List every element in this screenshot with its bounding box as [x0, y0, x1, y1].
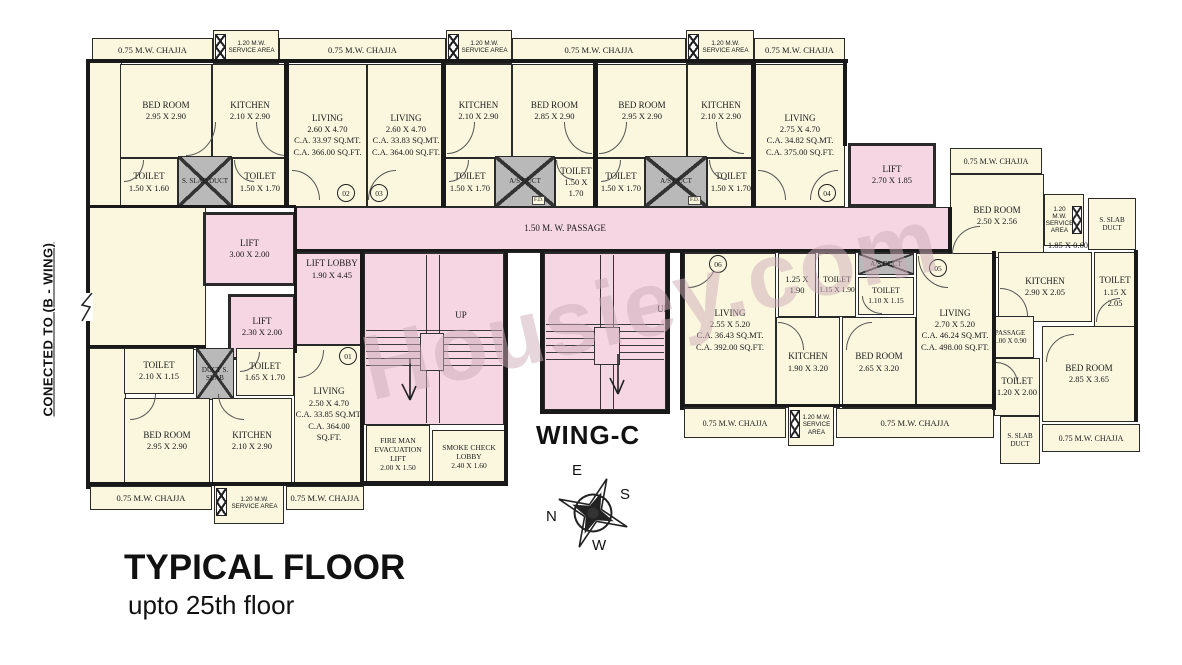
wall	[86, 59, 90, 489]
lift-lobby-label: LIFT LOBBY1.90 X 4.45	[296, 258, 368, 281]
unit-number-06: 06	[709, 255, 727, 273]
stair-direction-arrow	[604, 352, 630, 402]
chajja-strip: 0.75 M.W. CHAJJA	[1042, 424, 1140, 452]
wall	[441, 62, 446, 207]
wall	[362, 481, 508, 486]
room-smoke-check-lobby: SMOKE CHECK LOBBY 2.40 X 1.60	[432, 430, 506, 482]
window-x-icon	[1072, 206, 1082, 234]
wall	[992, 251, 996, 410]
unit-number-01: 01	[339, 347, 357, 365]
room-kitchen: KITCHEN2.10 X 2.90	[687, 64, 755, 158]
compass-east-label: E	[572, 462, 582, 479]
stair-gap-2	[670, 253, 680, 410]
duct-s-slab: DUCT S. SLAB	[196, 348, 234, 400]
window-x-icon	[688, 34, 699, 60]
room-lift: LIFT2.70 X 1.85	[848, 143, 936, 207]
duct-as: A/S DUCT	[495, 156, 555, 207]
wall	[86, 59, 848, 63]
stair-landing	[420, 333, 444, 371]
window-x-icon	[216, 488, 227, 516]
wall	[296, 249, 952, 252]
unit-number-02: 02	[337, 184, 355, 202]
unit-number-04: 04	[818, 184, 836, 202]
wall	[666, 251, 670, 414]
wall	[88, 345, 206, 348]
wall	[1134, 250, 1138, 422]
room-toilet: TOILET2.10 X 1.15	[124, 348, 194, 394]
left-strip-top	[88, 62, 122, 208]
wall	[948, 207, 952, 253]
chajja-strip: 0.75 M.W. CHAJJA	[950, 148, 1042, 174]
window-x-icon	[790, 410, 800, 438]
wall	[680, 404, 996, 407]
room-lift: LIFT3.00 X 2.00	[203, 212, 296, 286]
chajja-strip: 0.75 M.W. CHAJJA	[90, 486, 212, 510]
duct-as: A/S DUCT	[858, 253, 914, 275]
stair-direction-arrow	[396, 356, 422, 408]
wall	[540, 410, 670, 414]
wall-break-icon	[78, 293, 98, 323]
room-bath: 1.25 X 1.90	[778, 253, 816, 317]
wall	[751, 62, 756, 207]
passage-label: 1.50 M. W. PASSAGE	[480, 223, 650, 233]
page-title: TYPICAL FLOOR	[124, 548, 405, 588]
room-toilet: TOILET1.15 X 1.90	[818, 253, 856, 317]
chajja-strip: 0.75 M.W. CHAJJA	[836, 408, 994, 438]
wall	[593, 62, 598, 207]
fd-tag: F.D.	[688, 196, 701, 205]
room-fireman-lift: FIRE MAN EVACUATION LIFT 2.00 X 1.50	[366, 425, 430, 483]
chajja-strip: 0.75 M.W. CHAJJA	[684, 408, 786, 438]
window-x-icon	[215, 34, 226, 60]
stair-up-label: UP	[446, 310, 476, 320]
wing-label: WING-C	[536, 420, 640, 451]
chajja-strip: 0.75 M.W. CHAJJA	[286, 486, 364, 510]
wall	[540, 251, 544, 414]
compass-north-label: N	[546, 508, 557, 525]
page-subtitle: upto 25th floor	[128, 590, 294, 621]
wall	[843, 62, 847, 146]
window-x-icon	[448, 34, 459, 60]
wall	[88, 205, 296, 208]
wall	[284, 62, 289, 207]
floor-plan: 0.75 M.W. CHAJJA 1.20 M.W. SERVICE AREA …	[0, 0, 1182, 665]
unit-number-03: 03	[370, 184, 388, 202]
wall	[360, 251, 364, 485]
wall	[86, 482, 366, 486]
compass-west-label: W	[592, 537, 606, 554]
fd-tag: F.D.	[532, 196, 545, 205]
stair-up-label: UP	[648, 304, 678, 314]
left-open-area	[88, 205, 206, 350]
wall	[504, 251, 508, 485]
duct-s-slab: S. SLAB DUCT	[1000, 416, 1040, 464]
connected-wing-label: CONECTED TO (B - WING)	[41, 220, 56, 440]
duct-s-slab: S. SLAB DUCT	[178, 156, 232, 207]
left-strip-bottom	[88, 348, 126, 486]
service-dim-label: 1.85 X 0.60	[1028, 240, 1108, 250]
compass-south-label: S	[620, 486, 630, 503]
unit-number-05: 05	[929, 259, 947, 277]
wall	[680, 251, 684, 410]
